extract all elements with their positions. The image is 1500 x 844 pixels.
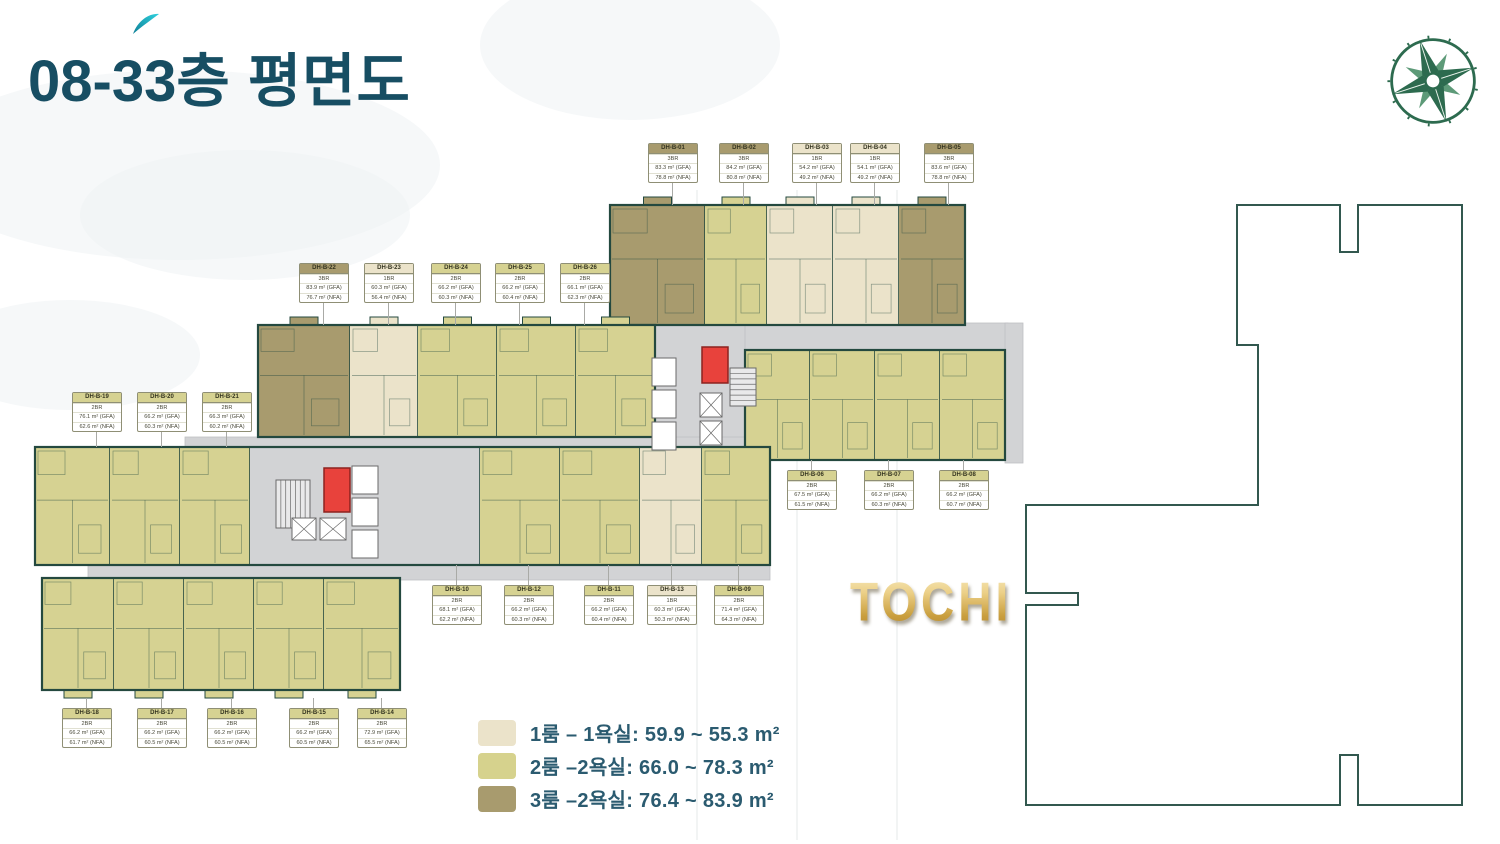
unit-callout: DH-B-092BR71.4 m² (GFA)64.3 m² (NFA): [714, 585, 764, 625]
legend-swatch: [478, 720, 516, 746]
unit-id: DH-B-02: [720, 144, 768, 154]
unit-gfa: 60.3 m² (GFA): [648, 605, 696, 615]
stairs: [730, 368, 756, 406]
unit-gfa: 83.6 m² (GFA): [925, 163, 973, 173]
balcony: [644, 197, 672, 205]
unit-nfa: 80.8 m² (NFA): [720, 173, 768, 183]
callout-leader-line: [381, 698, 382, 708]
balcony: [64, 690, 92, 698]
unit-id: DH-B-17: [138, 709, 186, 719]
highlighted-unit: [324, 468, 350, 512]
wing-d: [35, 447, 770, 565]
unit-gfa: 83.9 m² (GFA): [300, 283, 348, 293]
unit-gfa: 66.3 m² (GFA): [203, 412, 251, 422]
unit-bedrooms: 2BR: [433, 596, 481, 606]
balcony: [722, 197, 750, 205]
legend-label: 1룸 – 1욕실: 59.9 ~ 55.3 m²: [530, 718, 780, 747]
balcony: [444, 317, 472, 325]
unit-bedrooms: 1BR: [365, 274, 413, 284]
unit-bedrooms: 2BR: [138, 403, 186, 413]
shaft-x: [292, 518, 316, 540]
shaft-x: [700, 393, 722, 417]
unit-bedrooms: 2BR: [208, 719, 256, 729]
unit-bedrooms: 2BR: [940, 481, 988, 491]
shaft-x: [320, 518, 346, 540]
unit-nfa: 60.5 m² (NFA): [138, 738, 186, 748]
balcony: [786, 197, 814, 205]
unit-nfa: 56.4 m² (NFA): [365, 293, 413, 303]
unit-nfa: 61.7 m² (NFA): [63, 738, 111, 748]
unit-bedrooms: 2BR: [788, 481, 836, 491]
unit-id: DH-B-03: [793, 144, 841, 154]
unit-nfa: 61.5 m² (NFA): [788, 500, 836, 510]
adjacent-building-outline: [1026, 205, 1462, 805]
unit-nfa: 78.8 m² (NFA): [925, 173, 973, 183]
unit-id: DH-B-09: [715, 586, 763, 596]
unit-bedrooms: 2BR: [585, 596, 633, 606]
unit-id: DH-B-12: [505, 586, 553, 596]
callout-leader-line: [811, 460, 812, 470]
balcony: [205, 690, 233, 698]
highlighted-unit: [702, 347, 728, 383]
balcony: [290, 317, 318, 325]
unit-gfa: 83.3 m² (GFA): [649, 163, 697, 173]
unit-id: DH-B-05: [925, 144, 973, 154]
unit-bedrooms: 3BR: [720, 154, 768, 164]
unit-callout: DH-B-202BR66.2 m² (GFA)60.3 m² (NFA): [137, 392, 187, 432]
balcony: [275, 690, 303, 698]
legend-label: 3룸 –2욕실: 76.4 ~ 83.9 m²: [530, 784, 774, 813]
legend-item: 1룸 – 1욕실: 59.9 ~ 55.3 m²: [478, 716, 780, 749]
balcony: [135, 690, 163, 698]
unit-nfa: 62.2 m² (NFA): [433, 615, 481, 625]
unit-nfa: 60.3 m² (NFA): [432, 293, 480, 303]
unit-callout: DH-B-223BR83.9 m² (GFA)76.7 m² (NFA): [299, 263, 349, 303]
callout-leader-line: [313, 698, 314, 708]
unit-nfa: 50.3 m² (NFA): [648, 615, 696, 625]
elevator-shaft: [652, 422, 676, 450]
unit-callout: DH-B-231BR60.3 m² (GFA)56.4 m² (NFA): [364, 263, 414, 303]
unit-callout: DH-B-242BR66.2 m² (GFA)60.3 m² (NFA): [431, 263, 481, 303]
unit-gfa: 66.2 m² (GFA): [208, 728, 256, 738]
unit-gfa: 66.2 m² (GFA): [496, 283, 544, 293]
unit-bedrooms: 2BR: [496, 274, 544, 284]
callout-leader-line: [86, 698, 87, 708]
unit-nfa: 60.3 m² (NFA): [505, 615, 553, 625]
unit-bedrooms: 3BR: [925, 154, 973, 164]
compass-logo-icon: [1386, 34, 1480, 128]
elevator-shaft: [352, 498, 378, 526]
unit-bedrooms: 2BR: [358, 719, 406, 729]
unit-gfa: 66.1 m² (GFA): [561, 283, 609, 293]
unit-id: DH-B-20: [138, 393, 186, 403]
leaf-accent-icon: [131, 12, 161, 36]
unit-callout: DH-B-172BR66.2 m² (GFA)60.5 m² (NFA): [137, 708, 187, 748]
balcony: [918, 197, 946, 205]
unit-id: DH-B-01: [649, 144, 697, 154]
wing-b: [258, 317, 655, 437]
unit-id: DH-B-14: [358, 709, 406, 719]
unit-gfa: 66.2 m² (GFA): [940, 490, 988, 500]
callout-leader-line: [608, 565, 609, 585]
unit-nfa: 60.7 m² (NFA): [940, 500, 988, 510]
unit-bedrooms: 3BR: [300, 274, 348, 284]
unit-nfa: 60.4 m² (NFA): [496, 293, 544, 303]
unit-nfa: 49.2 m² (NFA): [851, 173, 899, 183]
unit-id: DH-B-04: [851, 144, 899, 154]
tochi-watermark: TOCHI: [850, 570, 1012, 634]
unit-gfa: 60.3 m² (GFA): [365, 283, 413, 293]
unit-nfa: 62.3 m² (NFA): [561, 293, 609, 303]
corridor: [1005, 323, 1023, 463]
shaft-x: [700, 421, 722, 445]
unit-id: DH-B-26: [561, 264, 609, 274]
unit-id: DH-B-13: [648, 586, 696, 596]
unit-gfa: 67.5 m² (GFA): [788, 490, 836, 500]
unit-callout: DH-B-112BR66.2 m² (GFA)60.4 m² (NFA): [584, 585, 634, 625]
unit-id: DH-B-15: [290, 709, 338, 719]
unit-callout: DH-B-182BR66.2 m² (GFA)61.7 m² (NFA): [62, 708, 112, 748]
unit-callout: DH-B-102BR68.1 m² (GFA)62.2 m² (NFA): [432, 585, 482, 625]
unit-gfa: 76.1 m² (GFA): [73, 412, 121, 422]
unit-callout: DH-B-013BR83.3 m² (GFA)78.8 m² (NFA): [648, 143, 698, 183]
callout-leader-line: [738, 565, 739, 585]
legend-label: 2룸 –2욕실: 66.0 ~ 78.3 m²: [530, 751, 774, 780]
unit-id: DH-B-25: [496, 264, 544, 274]
unit-bedrooms: 2BR: [63, 719, 111, 729]
unit-id: DH-B-07: [865, 471, 913, 481]
unit-gfa: 66.2 m² (GFA): [585, 605, 633, 615]
unit-id: DH-B-10: [433, 586, 481, 596]
unit-callout: DH-B-262BR66.1 m² (GFA)62.3 m² (NFA): [560, 263, 610, 303]
unit-nfa: 76.7 m² (NFA): [300, 293, 348, 303]
callout-leader-line: [456, 565, 457, 585]
unit-callout: DH-B-082BR66.2 m² (GFA)60.7 m² (NFA): [939, 470, 989, 510]
unit-callout: DH-B-212BR66.3 m² (GFA)60.2 m² (NFA): [202, 392, 252, 432]
unit-gfa: 66.2 m² (GFA): [865, 490, 913, 500]
legend-swatch: [478, 753, 516, 779]
unit-callout: DH-B-252BR66.2 m² (GFA)60.4 m² (NFA): [495, 263, 545, 303]
unit-id: DH-B-06: [788, 471, 836, 481]
unit-gfa: 72.9 m² (GFA): [358, 728, 406, 738]
wing-c: [745, 350, 1005, 460]
elevator-shaft: [352, 530, 378, 558]
unit-gfa: 66.2 m² (GFA): [505, 605, 553, 615]
unit-bedrooms: 2BR: [73, 403, 121, 413]
unit-id: DH-B-11: [585, 586, 633, 596]
callout-leader-line: [888, 460, 889, 470]
unit-bedrooms: 2BR: [505, 596, 553, 606]
slide: 08-33층 평면도 TOCHI: [0, 0, 1500, 844]
unit-nfa: 49.2 m² (NFA): [793, 173, 841, 183]
unit-callout: DH-B-162BR66.2 m² (GFA)60.5 m² (NFA): [207, 708, 257, 748]
unit-gfa: 66.2 m² (GFA): [138, 412, 186, 422]
unit-callout: DH-B-122BR66.2 m² (GFA)60.3 m² (NFA): [504, 585, 554, 625]
wing-a: [610, 197, 965, 325]
unit-nfa: 60.2 m² (NFA): [203, 422, 251, 432]
unit-gfa: 54.2 m² (GFA): [793, 163, 841, 173]
unit-bedrooms: 2BR: [138, 719, 186, 729]
unit-callout: DH-B-031BR54.2 m² (GFA)49.2 m² (NFA): [792, 143, 842, 183]
unit-nfa: 64.3 m² (NFA): [715, 615, 763, 625]
callout-leader-line: [671, 565, 672, 585]
unit-nfa: 78.8 m² (NFA): [649, 173, 697, 183]
unit-nfa: 60.5 m² (NFA): [290, 738, 338, 748]
unit-id: DH-B-08: [940, 471, 988, 481]
title-floor-range: 08-33: [28, 49, 176, 114]
balcony: [602, 317, 630, 325]
balcony: [370, 317, 398, 325]
unit-bedrooms: 1BR: [851, 154, 899, 164]
unit-id: DH-B-21: [203, 393, 251, 403]
unit-bedrooms: 2BR: [432, 274, 480, 284]
unit-id: DH-B-22: [300, 264, 348, 274]
unit-bedrooms: 2BR: [203, 403, 251, 413]
unit-gfa: 71.4 m² (GFA): [715, 605, 763, 615]
unit-callout: DH-B-142BR72.9 m² (GFA)65.5 m² (NFA): [357, 708, 407, 748]
unit-bedrooms: 2BR: [865, 481, 913, 491]
unit-callout: DH-B-023BR84.2 m² (GFA)80.8 m² (NFA): [719, 143, 769, 183]
unit-callout: DH-B-041BR54.1 m² (GFA)49.2 m² (NFA): [850, 143, 900, 183]
unit-callout: DH-B-053BR83.6 m² (GFA)78.8 m² (NFA): [924, 143, 974, 183]
callout-leader-line: [231, 698, 232, 708]
balcony: [348, 690, 376, 698]
balcony: [852, 197, 880, 205]
unit-id: DH-B-19: [73, 393, 121, 403]
legend-item: 3룸 –2욕실: 76.4 ~ 83.9 m²: [478, 782, 780, 815]
unit-bedrooms: 1BR: [648, 596, 696, 606]
unit-bedrooms: 3BR: [649, 154, 697, 164]
page-title: 08-33층 평면도: [28, 34, 411, 118]
unit-gfa: 68.1 m² (GFA): [433, 605, 481, 615]
elevator-shaft: [652, 390, 676, 418]
unit-nfa: 60.4 m² (NFA): [585, 615, 633, 625]
unit-nfa: 65.5 m² (NFA): [358, 738, 406, 748]
balcony: [523, 317, 551, 325]
legend: 1룸 – 1욕실: 59.9 ~ 55.3 m²2룸 –2욕실: 66.0 ~ …: [478, 716, 780, 815]
callout-leader-line: [528, 565, 529, 585]
unit-callout: DH-B-152BR66.2 m² (GFA)60.5 m² (NFA): [289, 708, 339, 748]
unit-callout: DH-B-072BR66.2 m² (GFA)60.3 m² (NFA): [864, 470, 914, 510]
legend-item: 2룸 –2욕실: 66.0 ~ 78.3 m²: [478, 749, 780, 782]
unit-gfa: 66.2 m² (GFA): [138, 728, 186, 738]
unit-nfa: 62.6 m² (NFA): [73, 422, 121, 432]
unit-bedrooms: 2BR: [715, 596, 763, 606]
unit-callout: DH-B-131BR60.3 m² (GFA)50.3 m² (NFA): [647, 585, 697, 625]
unit-nfa: 60.3 m² (NFA): [138, 422, 186, 432]
elevator-shaft: [652, 358, 676, 386]
unit-id: DH-B-23: [365, 264, 413, 274]
unit-nfa: 60.5 m² (NFA): [208, 738, 256, 748]
unit-bedrooms: 2BR: [561, 274, 609, 284]
unit-bedrooms: 2BR: [290, 719, 338, 729]
unit-id: DH-B-16: [208, 709, 256, 719]
unit-bedrooms: 1BR: [793, 154, 841, 164]
unit-nfa: 60.3 m² (NFA): [865, 500, 913, 510]
wing-e: [42, 578, 400, 698]
unit-gfa: 84.2 m² (GFA): [720, 163, 768, 173]
legend-swatch: [478, 786, 516, 812]
callout-leader-line: [161, 698, 162, 708]
unit-callout: DH-B-192BR76.1 m² (GFA)62.6 m² (NFA): [72, 392, 122, 432]
elevator-shaft: [352, 466, 378, 494]
unit-gfa: 66.2 m² (GFA): [432, 283, 480, 293]
unit-gfa: 54.1 m² (GFA): [851, 163, 899, 173]
unit-id: DH-B-18: [63, 709, 111, 719]
unit-callout: DH-B-062BR67.5 m² (GFA)61.5 m² (NFA): [787, 470, 837, 510]
unit-gfa: 66.2 m² (GFA): [290, 728, 338, 738]
unit-id: DH-B-24: [432, 264, 480, 274]
callout-leader-line: [963, 460, 964, 470]
unit-gfa: 66.2 m² (GFA): [63, 728, 111, 738]
title-text: 층 평면도: [176, 49, 411, 114]
